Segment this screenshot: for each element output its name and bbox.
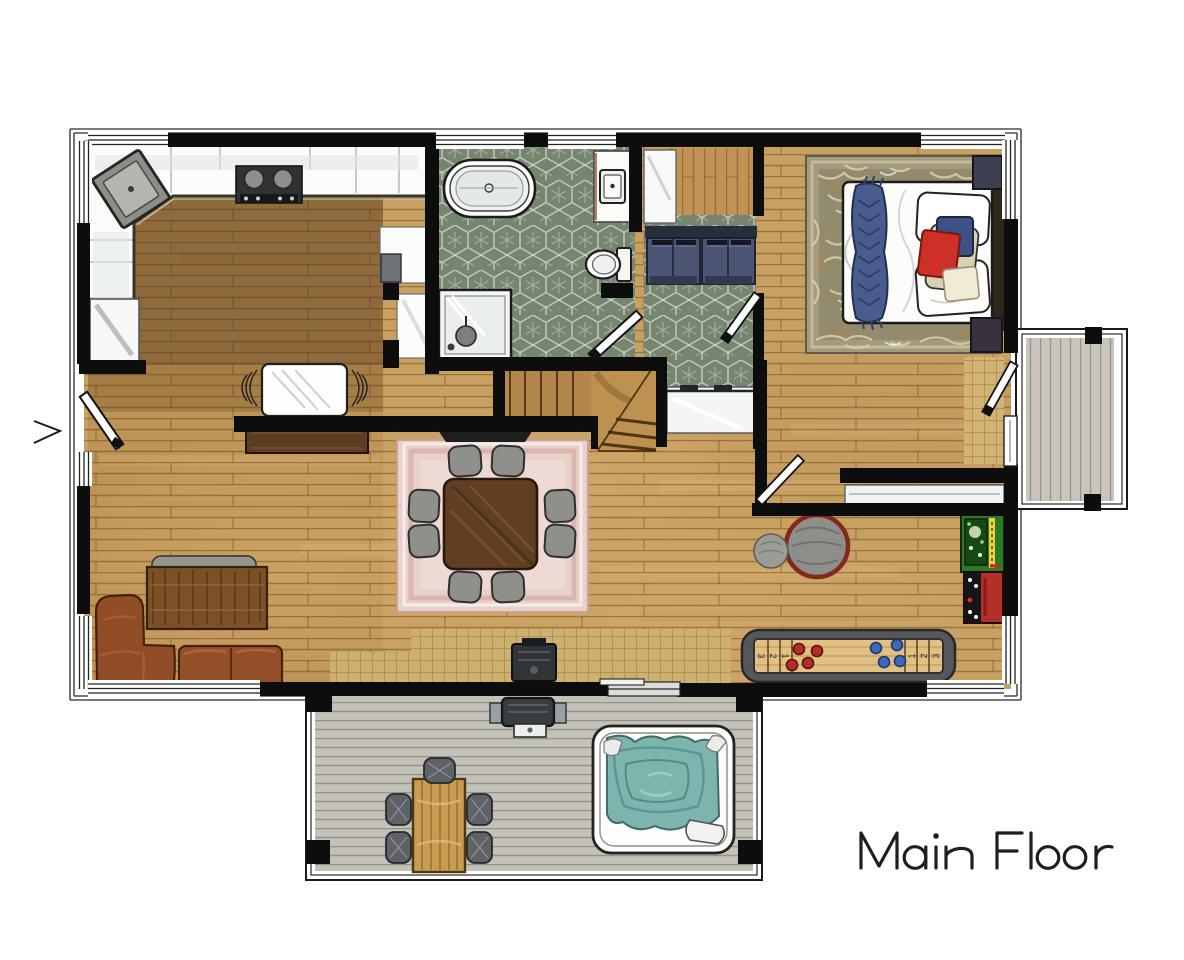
svg-text:1: 1 <box>780 653 790 658</box>
svg-text:3: 3 <box>756 653 766 658</box>
svg-text:2: 2 <box>919 653 929 658</box>
svg-text:3: 3 <box>931 653 941 658</box>
svg-text:2: 2 <box>768 653 778 658</box>
svg-text:1: 1 <box>907 653 917 658</box>
